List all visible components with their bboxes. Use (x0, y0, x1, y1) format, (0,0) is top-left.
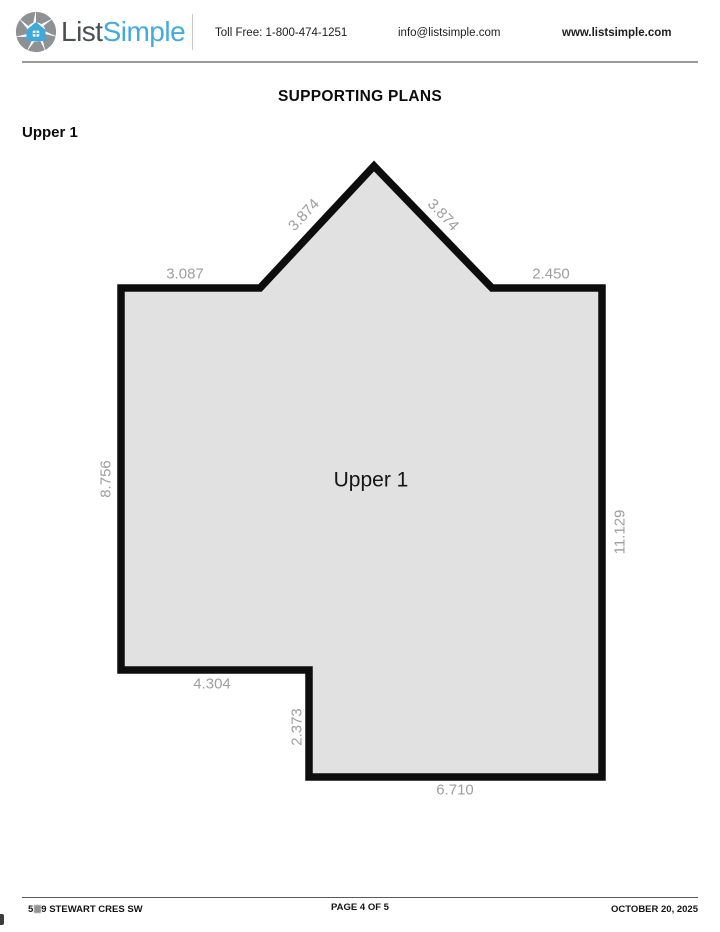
scan-artifact (0, 914, 4, 925)
dimension-left-edge: 8.756 (98, 460, 115, 498)
footer-separator-line (22, 897, 698, 898)
dimension-bottom-edge: 6.710 (436, 782, 474, 799)
dimension-notch-bottom-edge: 4.304 (193, 676, 231, 693)
dimension-notch-side-edge: 2.373 (289, 708, 306, 746)
dimension-top-left-edge: 3.087 (166, 266, 204, 283)
dimension-top-right-edge: 2.450 (532, 266, 570, 283)
floor-plan: 3.087 3.874 3.874 2.450 8.756 11.129 4.3… (0, 0, 720, 932)
room-label: Upper 1 (334, 469, 409, 492)
dimension-right-edge: 11.129 (612, 510, 629, 555)
document-page: ListSimple Toll Free: 1-800-474-1251 inf… (0, 0, 720, 932)
footer-date: OCTOBER 20, 2025 (611, 904, 698, 915)
